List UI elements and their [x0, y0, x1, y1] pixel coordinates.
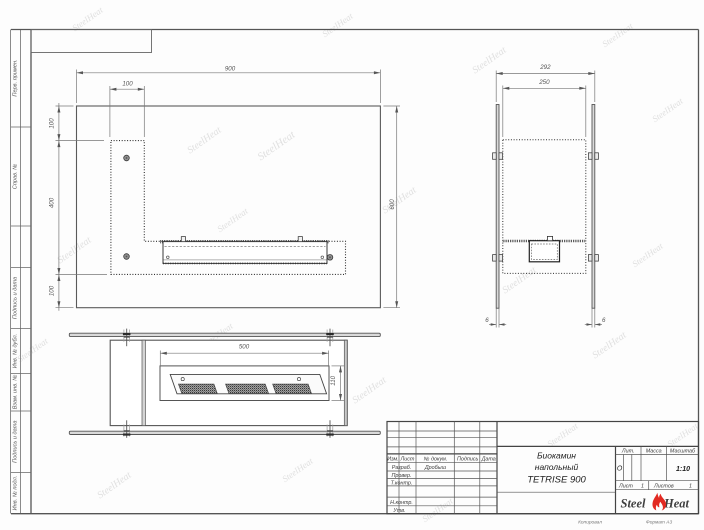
svg-text:Инв. № подл.: Инв. № подл.: [13, 476, 19, 511]
svg-text:600: 600: [389, 199, 396, 210]
svg-text:Копировал: Копировал: [578, 520, 602, 526]
svg-text:№ докум.: № докум.: [424, 457, 448, 463]
svg-text:TETRISE 900: TETRISE 900: [527, 475, 586, 486]
svg-text:Дата: Дата: [481, 457, 496, 463]
svg-text:1: 1: [641, 484, 644, 490]
svg-text:100: 100: [49, 118, 56, 129]
svg-text:6: 6: [485, 317, 489, 324]
svg-text:500: 500: [239, 344, 250, 351]
svg-text:900: 900: [225, 66, 236, 73]
svg-text:Подпись и дата: Подпись и дата: [13, 277, 19, 319]
svg-text:Масштаб: Масштаб: [670, 449, 696, 455]
svg-text:110: 110: [330, 375, 337, 385]
svg-text:Лист: Лист: [618, 484, 633, 490]
svg-text:Провер.: Провер.: [391, 473, 411, 479]
svg-text:Перв. примен.: Перв. примен.: [13, 59, 19, 96]
svg-text:Биокамин: Биокамин: [537, 451, 576, 461]
svg-text:Справ. №: Справ. №: [13, 164, 19, 189]
svg-text:100: 100: [49, 285, 56, 296]
svg-text:292: 292: [539, 64, 551, 71]
svg-text:О: О: [617, 466, 623, 473]
svg-text:Формат А3: Формат А3: [646, 520, 673, 526]
svg-text:1: 1: [689, 484, 692, 490]
svg-text:Лист: Лист: [400, 457, 415, 463]
svg-text:Масса: Масса: [646, 449, 662, 455]
svg-text:250: 250: [538, 79, 550, 86]
svg-text:Steel: Steel: [621, 497, 647, 511]
svg-text:Взам. инв. №: Взам. инв. №: [13, 375, 19, 410]
svg-text:Heat: Heat: [663, 497, 690, 511]
svg-text:Н.контр.: Н.контр.: [390, 500, 413, 506]
svg-text:6: 6: [602, 317, 606, 324]
svg-text:Дробыш: Дробыш: [424, 465, 447, 471]
svg-text:Подпись: Подпись: [457, 457, 479, 463]
svg-text:напольный: напольный: [535, 462, 579, 472]
svg-text:Листов: Листов: [653, 484, 674, 490]
svg-text:Подпись и дата: Подпись и дата: [13, 421, 19, 463]
svg-text:Изм.: Изм.: [387, 457, 399, 463]
svg-text:Лит.: Лит.: [621, 449, 635, 455]
svg-text:400: 400: [49, 197, 56, 208]
svg-text:Разраб.: Разраб.: [392, 465, 412, 471]
svg-text:100: 100: [122, 81, 133, 88]
svg-text:Инв. № дубл.: Инв. № дубл.: [13, 334, 19, 368]
svg-text:1:10: 1:10: [676, 466, 690, 473]
svg-text:Утв.: Утв.: [392, 508, 405, 514]
svg-text:Т.контр.: Т.контр.: [391, 481, 413, 487]
